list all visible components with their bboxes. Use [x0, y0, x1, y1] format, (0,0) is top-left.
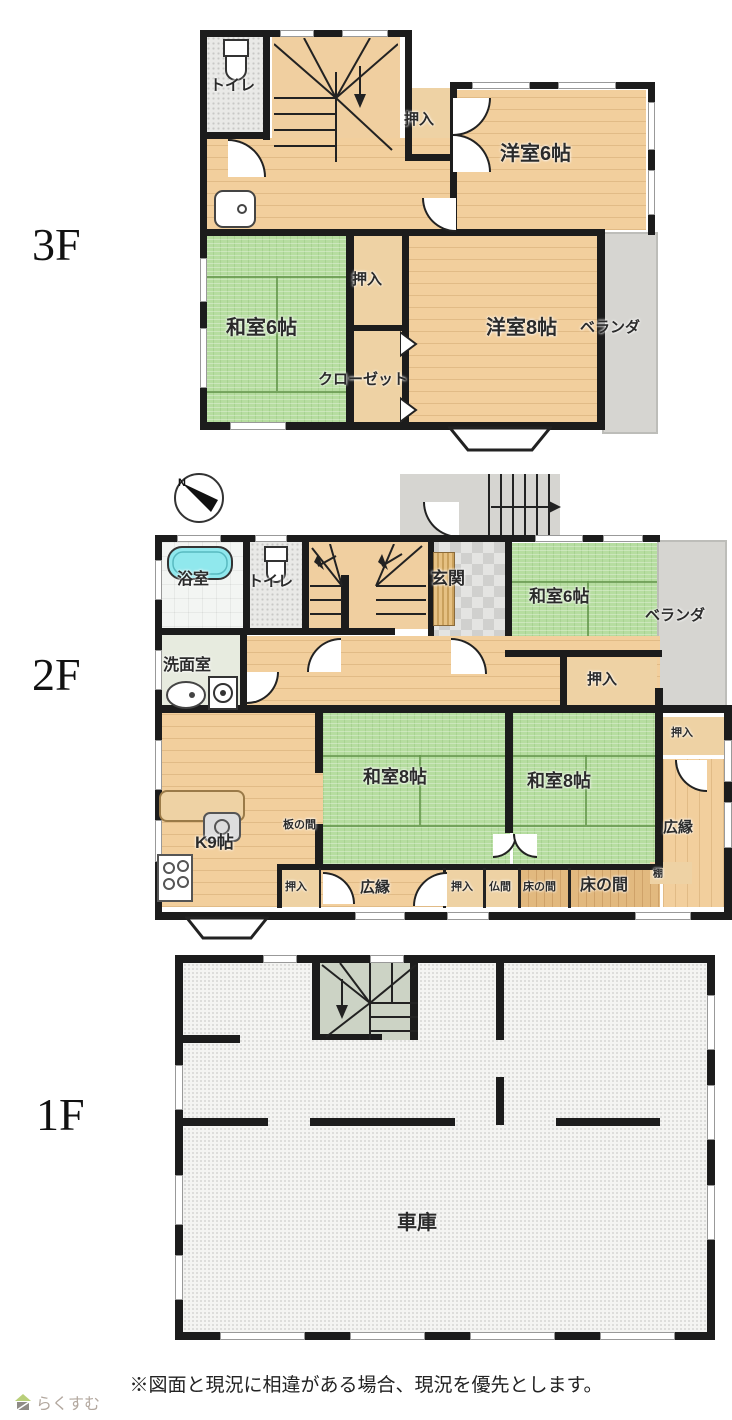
- wall: [315, 824, 323, 868]
- wall: [348, 325, 404, 331]
- room-label: 和室6帖: [529, 588, 589, 605]
- room-label: 浴室: [177, 572, 209, 588]
- window: [724, 740, 732, 782]
- wall: [155, 628, 395, 635]
- room-label: 広縁: [360, 880, 390, 895]
- wall: [310, 1118, 455, 1126]
- room-label: 仏間: [489, 882, 511, 893]
- room-label: ベランダ: [580, 320, 640, 335]
- tatami-seam: [511, 581, 657, 583]
- wall: [175, 955, 715, 963]
- staircase-2f: [310, 544, 426, 628]
- window: [263, 955, 297, 963]
- window: [370, 955, 404, 963]
- logo-text: らくすむ: [36, 1390, 100, 1414]
- room-label: 洋室8帖: [486, 318, 557, 338]
- room-label: トイレ: [248, 574, 293, 589]
- room-label: 押入: [451, 882, 473, 893]
- logo: らくすむ: [14, 1390, 100, 1414]
- window: [200, 328, 207, 388]
- room-label: 押入: [285, 882, 307, 893]
- bay-window: [448, 426, 552, 452]
- wall: [155, 535, 660, 542]
- wall: [568, 868, 571, 908]
- room-label: 押入: [404, 112, 434, 127]
- floor-label-1f: 1F: [36, 1088, 85, 1141]
- window: [280, 30, 314, 37]
- window: [355, 912, 405, 920]
- plan-1f: 車庫: [175, 955, 715, 1340]
- wall: [315, 713, 323, 773]
- wall: [483, 868, 486, 908]
- room-label: 床の間: [523, 882, 556, 893]
- tatami-seam: [323, 755, 510, 757]
- room-label: 和室8帖: [527, 772, 591, 790]
- window: [648, 170, 655, 215]
- compass-north: N: [178, 477, 186, 489]
- wall: [556, 1118, 660, 1126]
- wall: [560, 657, 567, 712]
- staircase-1f: [320, 963, 418, 1040]
- room-label: 床の間: [580, 878, 628, 894]
- window: [175, 1255, 183, 1300]
- room-label: 板の間: [283, 820, 316, 831]
- wall: [178, 1035, 240, 1043]
- staircase-3f: [274, 38, 398, 162]
- washing-machine-icon: [208, 676, 238, 710]
- wall: [178, 1118, 268, 1126]
- window: [648, 102, 655, 150]
- window: [342, 30, 388, 37]
- wall: [346, 233, 354, 430]
- exterior-stair-treads: [485, 474, 563, 540]
- tatami-seam: [206, 276, 348, 278]
- wall: [312, 955, 320, 1040]
- room-label: クローゼット: [318, 372, 408, 387]
- wall: [405, 30, 412, 160]
- room-label: ベランダ: [645, 608, 705, 623]
- window: [707, 1185, 715, 1240]
- wall: [302, 535, 309, 630]
- floor-label-3f: 3F: [32, 218, 81, 271]
- house-icon: [14, 1393, 32, 1411]
- room-2f-washitsu8-left: [323, 713, 510, 868]
- window: [350, 1332, 425, 1340]
- compass-icon: N: [173, 472, 225, 524]
- room-label: 和室6帖: [226, 318, 297, 338]
- wall: [505, 650, 662, 657]
- wall: [505, 713, 513, 833]
- wall: [263, 30, 270, 140]
- stair-arrow: [354, 94, 366, 108]
- window: [472, 82, 530, 89]
- room-label: 玄関: [431, 570, 465, 587]
- toilet-icon: [259, 546, 293, 598]
- floor-label-2f: 2F: [32, 648, 81, 701]
- wall: [496, 955, 504, 1040]
- plan-2f: N: [155, 472, 732, 922]
- wall: [277, 864, 282, 908]
- window: [155, 650, 162, 690]
- wall: [240, 635, 247, 713]
- wall: [155, 705, 732, 713]
- tatami-seam: [513, 755, 655, 757]
- room-label: K9帖: [195, 834, 234, 851]
- room-2f-veranda: [657, 540, 727, 712]
- tatami-seam: [206, 391, 348, 393]
- wall: [496, 1077, 504, 1125]
- wall: [505, 535, 512, 636]
- window: [603, 535, 643, 542]
- window: [724, 802, 732, 848]
- window: [155, 560, 162, 600]
- room-label: 車庫: [397, 1213, 437, 1233]
- room-label: 洋室6帖: [500, 144, 571, 164]
- room-label: トイレ: [210, 78, 255, 93]
- window: [177, 535, 221, 542]
- wall: [655, 688, 663, 868]
- window: [600, 1332, 675, 1340]
- window: [635, 912, 691, 920]
- window: [558, 82, 616, 89]
- wall: [518, 868, 521, 908]
- tatami-seam: [419, 755, 421, 825]
- room-label: 押入: [587, 672, 617, 687]
- room-1f-garage: [175, 955, 715, 1340]
- stove-icon: [157, 854, 193, 902]
- bay-window: [185, 916, 269, 940]
- window: [230, 422, 286, 430]
- window: [707, 995, 715, 1050]
- room-label: 和室8帖: [363, 768, 427, 786]
- sink-icon: [214, 190, 256, 228]
- window: [255, 535, 287, 542]
- tatami-seam: [513, 825, 655, 827]
- room-label: 広縁: [663, 820, 693, 835]
- window: [447, 912, 489, 920]
- window: [535, 535, 583, 542]
- window: [155, 740, 162, 790]
- window: [470, 1332, 555, 1340]
- window: [220, 1332, 305, 1340]
- window: [200, 258, 207, 302]
- wall: [200, 132, 270, 139]
- room-label: 洗面室: [163, 658, 211, 674]
- window: [707, 1085, 715, 1140]
- shoe-cabinet: [433, 552, 455, 626]
- room-label: 押入: [671, 728, 693, 739]
- tatami-seam: [323, 825, 510, 827]
- disclaimer-text: ※図面と現況に相違がある場合、現況を優先とします。: [0, 1370, 732, 1397]
- wall: [319, 868, 321, 908]
- plan-3f: トイレ 押入 洋室6帖 和室6帖 押入 クローゼット 洋室8帖 ベランダ: [200, 30, 660, 455]
- window: [175, 1065, 183, 1110]
- room-label: 棚: [653, 870, 663, 880]
- wall: [277, 864, 660, 870]
- window: [175, 1175, 183, 1225]
- wall: [405, 154, 457, 161]
- room-label: 押入: [352, 272, 382, 287]
- washbasin-icon: [165, 680, 207, 710]
- floorplan-page: 3F: [0, 0, 732, 1420]
